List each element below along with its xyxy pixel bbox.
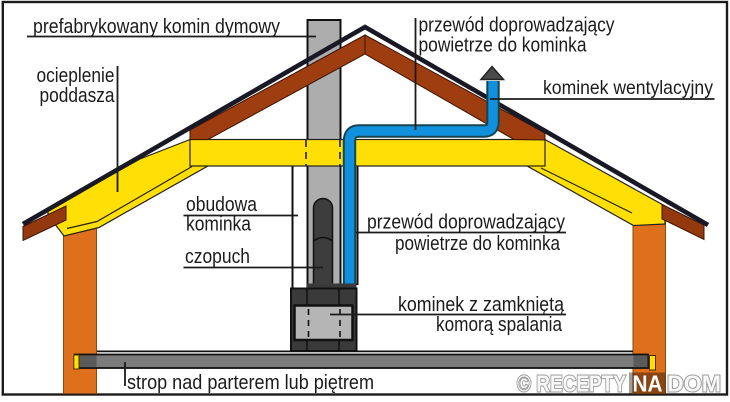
svg-text:prefabrykowany komin dymowy: prefabrykowany komin dymowy — [33, 16, 280, 38]
svg-text:kominek z zamkniętą: kominek z zamkniętą — [398, 294, 565, 316]
svg-text:czopuch: czopuch — [185, 246, 250, 268]
svg-text:© RECEPTY: © RECEPTY — [517, 371, 626, 397]
svg-text:powietrze do kominka: powietrze do kominka — [419, 34, 588, 56]
svg-text:kominek wentylacyjny: kominek wentylacyjny — [543, 78, 713, 99]
svg-text:przewód doprowadzający: przewód doprowadzający — [367, 212, 565, 234]
svg-text:przewód doprowadzający: przewód doprowadzający — [419, 15, 615, 37]
svg-text:kominka: kominka — [186, 214, 252, 236]
svg-text:powietrze do kominka: powietrze do kominka — [395, 233, 561, 255]
svg-text:ocieplenie: ocieplenie — [37, 65, 115, 87]
svg-text:komorą spalania: komorą spalania — [436, 314, 563, 336]
svg-text:strop nad parterem lub piętrem: strop nad parterem lub piętrem — [127, 372, 374, 394]
svg-text:DOM: DOM — [667, 371, 721, 397]
svg-text:poddasza: poddasza — [40, 85, 116, 107]
svg-text:NA: NA — [633, 371, 663, 397]
